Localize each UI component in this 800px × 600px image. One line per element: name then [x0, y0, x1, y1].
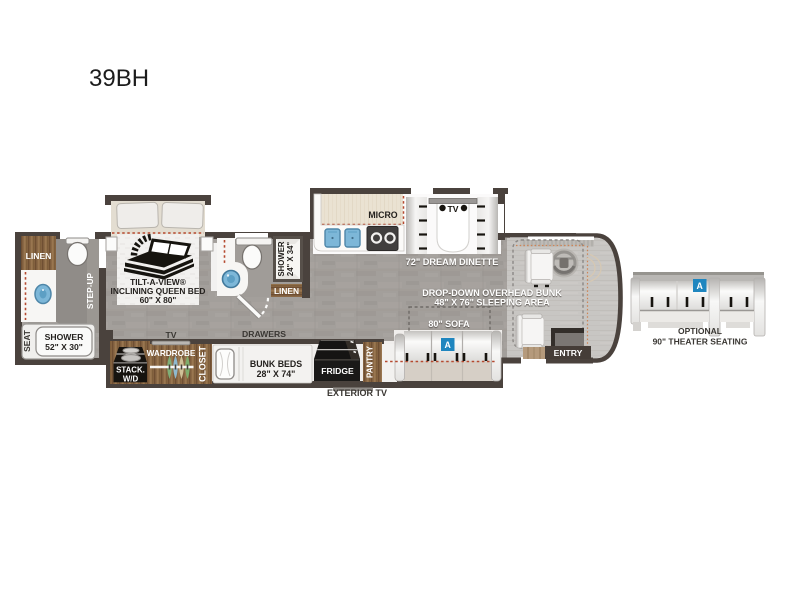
svg-text:DRAWERS: DRAWERS: [242, 329, 286, 339]
svg-text:SEAT: SEAT: [22, 329, 32, 352]
svg-text:DROP-DOWN OVERHEAD BUNK: DROP-DOWN OVERHEAD BUNK: [422, 288, 562, 298]
svg-text:W/D: W/D: [123, 375, 139, 384]
svg-text:STEP-UP: STEP-UP: [85, 272, 95, 309]
svg-text:24" X 34": 24" X 34": [286, 242, 295, 277]
svg-text:OPTIONAL: OPTIONAL: [678, 326, 722, 336]
svg-text:LINEN: LINEN: [26, 251, 52, 261]
svg-text:28" X 74": 28" X 74": [257, 369, 296, 379]
svg-text:SHOWER: SHOWER: [277, 241, 286, 276]
svg-text:TV: TV: [448, 204, 459, 214]
svg-text:48" X 76" SLEEPING AREA: 48" X 76" SLEEPING AREA: [434, 298, 550, 308]
svg-text:FRIDGE: FRIDGE: [321, 366, 354, 376]
svg-text:LINEN: LINEN: [274, 286, 299, 296]
svg-text:ENTRY: ENTRY: [554, 348, 583, 358]
svg-text:80" SOFA: 80" SOFA: [428, 319, 470, 329]
svg-text:MICRO: MICRO: [368, 210, 397, 220]
svg-text:CLOSET: CLOSET: [198, 346, 208, 382]
svg-text:EXTERIOR TV: EXTERIOR TV: [327, 388, 387, 398]
svg-text:TV: TV: [166, 330, 177, 340]
svg-text:A: A: [697, 281, 704, 291]
svg-text:PANTRY: PANTRY: [366, 345, 375, 378]
svg-text:A: A: [445, 340, 452, 350]
svg-text:60" X 80": 60" X 80": [140, 295, 177, 305]
svg-text:BUNK BEDS: BUNK BEDS: [250, 359, 302, 369]
svg-text:52" X 30": 52" X 30": [45, 342, 83, 352]
svg-text:90" THEATER SEATING: 90" THEATER SEATING: [653, 337, 748, 347]
svg-text:WARDROBE: WARDROBE: [147, 349, 196, 358]
svg-text:SHOWER: SHOWER: [45, 332, 84, 342]
svg-text:STACK.: STACK.: [116, 366, 145, 375]
svg-text:72" DREAM DINETTE: 72" DREAM DINETTE: [406, 257, 499, 267]
svg-text:39BH: 39BH: [89, 65, 149, 92]
